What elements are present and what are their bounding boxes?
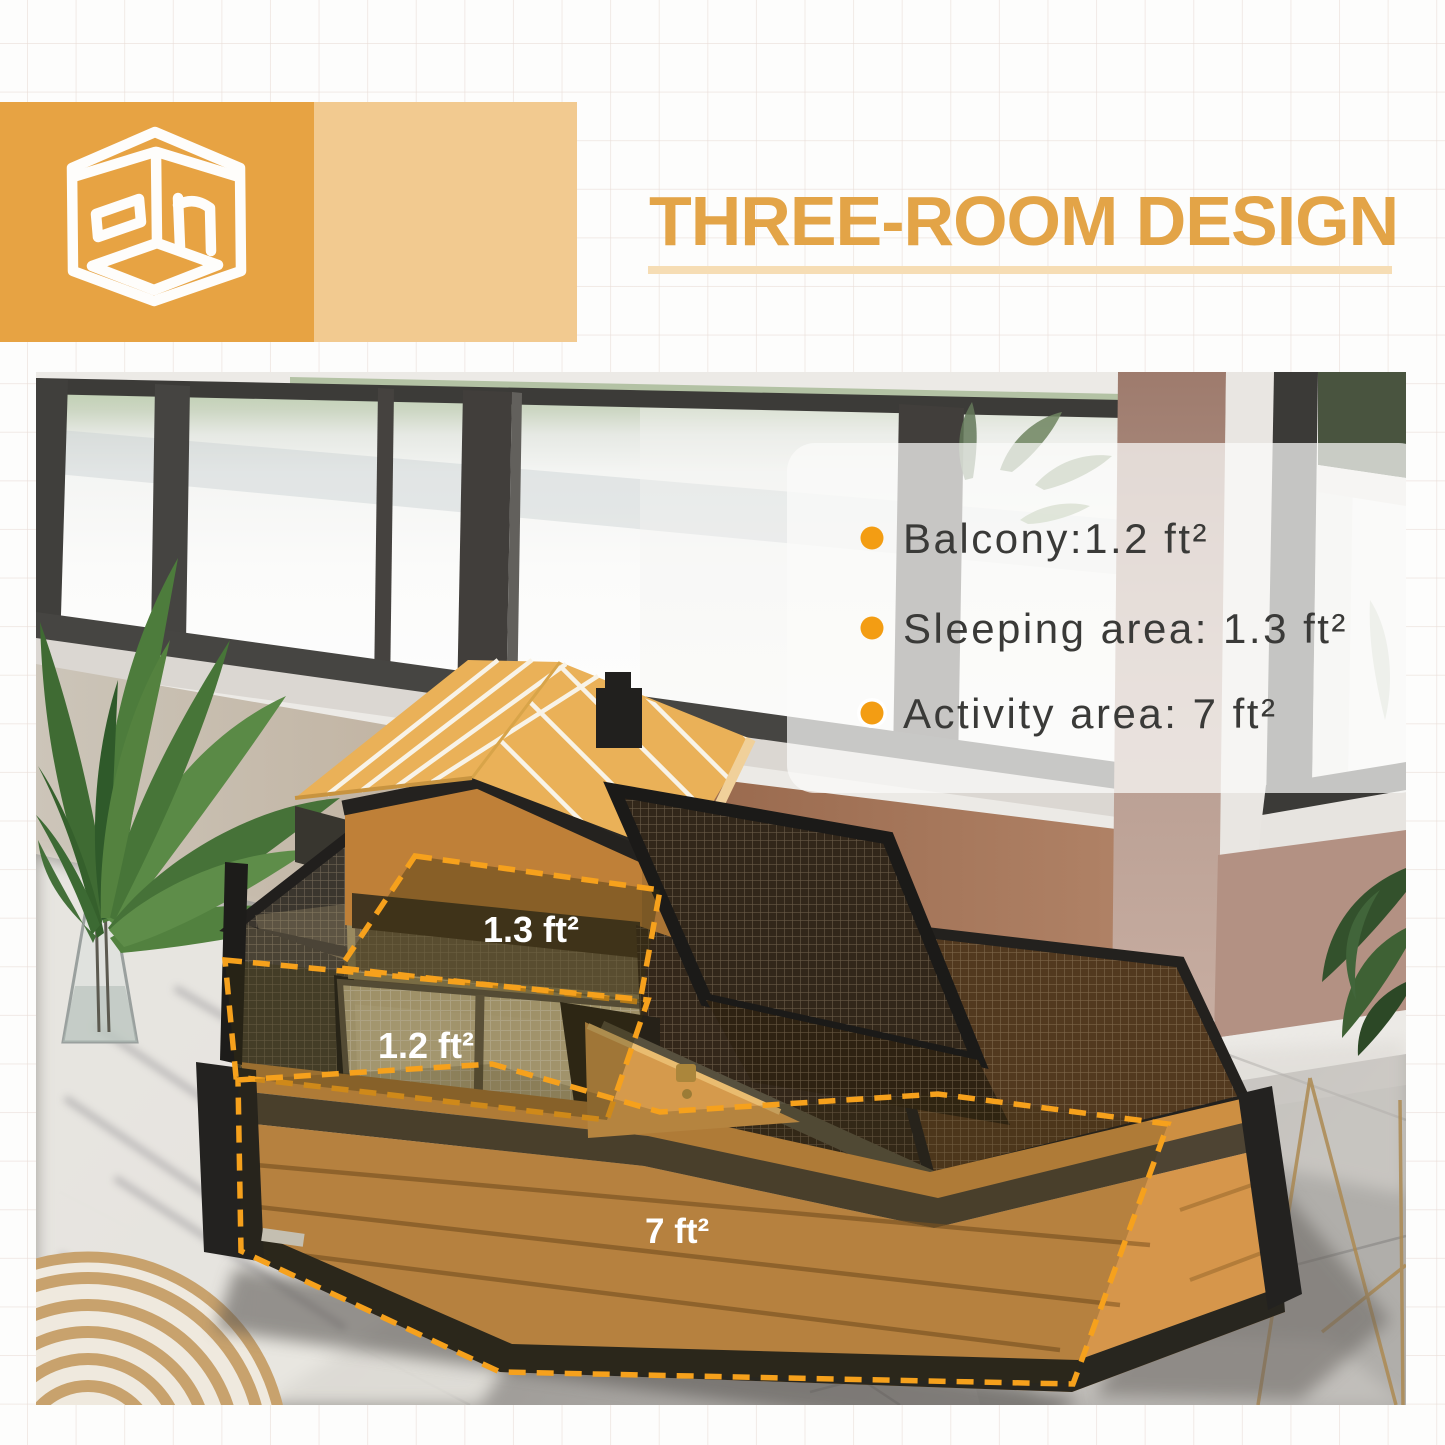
svg-text:Sleeping area: 1.3 ft²: Sleeping area: 1.3 ft² (903, 605, 1348, 652)
svg-text:1.3 ft²: 1.3 ft² (483, 909, 579, 950)
svg-text:1.2 ft²: 1.2 ft² (378, 1025, 474, 1066)
svg-text:7 ft²: 7 ft² (645, 1212, 709, 1251)
svg-text:Balcony:1.2 ft²: Balcony:1.2 ft² (903, 515, 1209, 562)
svg-text:Activity area: 7 ft²: Activity area: 7 ft² (903, 690, 1277, 737)
